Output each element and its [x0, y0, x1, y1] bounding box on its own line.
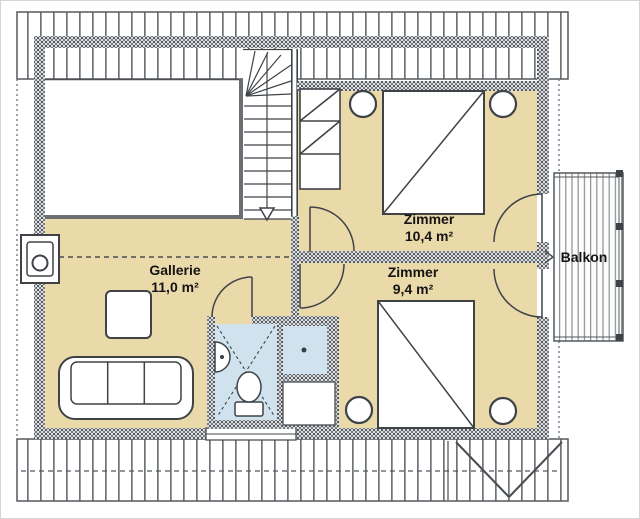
- sofa: [59, 357, 193, 419]
- room-area: 11,0 m²: [115, 279, 235, 296]
- stair-side-wall: [291, 49, 298, 216]
- bath-door-opening: [215, 316, 252, 324]
- void-opening: [45, 79, 243, 219]
- shower-drain-icon: [302, 348, 307, 353]
- wall-north: [34, 36, 549, 48]
- room-label-gallerie: Gallerie 11,0 m²: [115, 262, 235, 296]
- room-name: Zimmer: [369, 211, 489, 228]
- room-label-zimmer-bottom: Zimmer 9,4 m²: [353, 264, 473, 298]
- room-area: 10,4 m²: [369, 228, 489, 245]
- bathroom: [207, 316, 339, 429]
- bath-niche: [283, 382, 335, 425]
- room-name: Zimmer: [353, 264, 473, 281]
- floor-plan: Gallerie 11,0 m² Zimmer 10,4 m² Zimmer 9…: [0, 0, 640, 519]
- coffee-table: [106, 291, 151, 338]
- nightstand: [346, 397, 372, 423]
- nightstand: [490, 398, 516, 424]
- floor-plan-drawing: [1, 1, 640, 519]
- nightstand: [350, 91, 376, 117]
- nightstand: [490, 91, 516, 117]
- room-label-zimmer-top: Zimmer 10,4 m²: [369, 211, 489, 245]
- room-name: Balkon: [549, 249, 619, 266]
- wall-hall-bedroom: [291, 216, 299, 319]
- chimney: [21, 235, 59, 283]
- room-area: 9,4 m²: [353, 281, 473, 298]
- wall-between-bedrooms: [291, 251, 549, 263]
- room-name: Gallerie: [115, 262, 235, 279]
- room-label-balkon: Balkon: [549, 249, 619, 266]
- wardrobe: [300, 89, 340, 189]
- roof-overhang-bottom: [17, 439, 568, 501]
- staircase: [243, 49, 298, 220]
- toilet-icon: [235, 372, 263, 416]
- bath-window: [206, 428, 296, 440]
